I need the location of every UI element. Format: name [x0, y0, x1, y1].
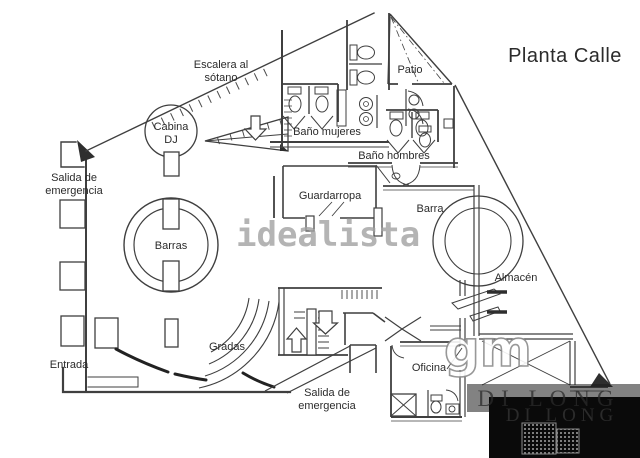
up-arrow-icon	[287, 328, 306, 352]
label-salida-sup-line2: emergencia	[45, 185, 103, 197]
elevator-x-icon	[391, 394, 416, 416]
label-guardarropa: Guardarropa	[299, 190, 362, 202]
label-oficina: Oficina	[412, 362, 447, 374]
idealista-watermark: idealista	[236, 215, 420, 255]
label-bano-mujeres: Baño mujeres	[293, 126, 361, 138]
label-patio: Patio	[397, 64, 422, 76]
label-barra: Barra	[417, 203, 445, 215]
down-arrow-icon	[314, 311, 338, 334]
label-salida-inf-line2: emergencia	[298, 400, 356, 412]
label-salida-sup-line1: Salida de	[51, 172, 97, 184]
label-cabina-line1: Cabina	[154, 121, 190, 133]
central-staircase	[265, 288, 461, 393]
label-escalera-line1: Escalera al	[194, 59, 248, 71]
label-barras: Barras	[155, 240, 188, 252]
gm-watermark: gm	[444, 320, 532, 378]
label-cabina-line2: DJ	[164, 134, 177, 146]
label-bano-hombres: Baño hombres	[358, 150, 430, 162]
label-almacen: Almacén	[495, 272, 538, 284]
page-title: Planta Calle	[508, 45, 622, 67]
label-escalera-line2: sótano	[204, 72, 237, 84]
entrance-doors	[116, 349, 274, 387]
label-entrada: Entrada	[50, 359, 89, 371]
floor-plan-page: Planta Calle Escalera al sótano Cabina D…	[0, 0, 640, 458]
label-gradas: Gradas	[209, 341, 246, 353]
central-bar-circle	[124, 198, 218, 347]
label-salida-inf-line1: Salida de	[304, 387, 350, 399]
entrance-pillar	[95, 318, 118, 348]
floor-plan: Planta Calle Escalera al sótano Cabina D…	[0, 0, 640, 458]
restroom-block	[270, 13, 474, 190]
